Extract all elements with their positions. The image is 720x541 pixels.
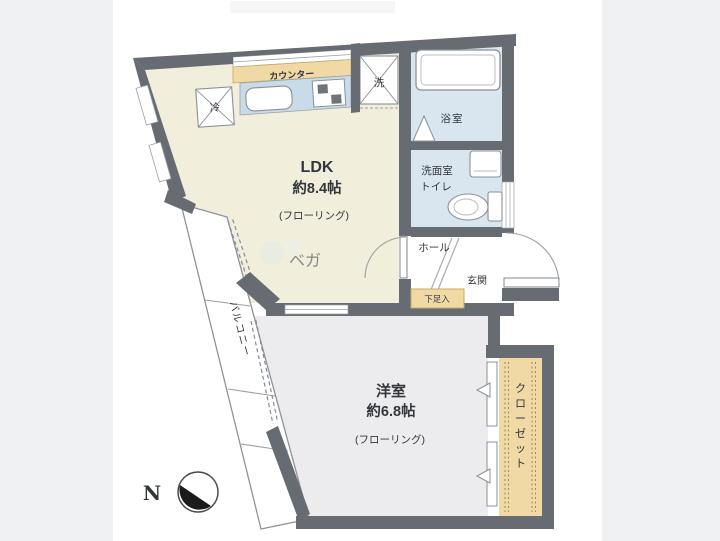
wall-bath-washroom (411, 141, 514, 150)
bedroom-title: 洋室 (376, 382, 406, 400)
watermark-text: ベガ (289, 252, 321, 270)
hall-door-leaf (400, 236, 407, 278)
fridge-label: 冷 (209, 101, 221, 115)
wall-closet-right (542, 345, 554, 529)
floorplan-svg: ベガ バルコニー カウンター 冷 (0, 0, 720, 541)
north-label: N (143, 481, 161, 505)
bedroom-size: 約6.8帖 (366, 402, 416, 420)
wall-entrance-stub (502, 288, 559, 301)
closet-label-char: ゼ (515, 427, 526, 440)
closet-label-char: ク (515, 382, 526, 395)
wall-closet-connector (488, 316, 500, 347)
kitchen-sink (245, 86, 292, 112)
watermark-circle (260, 241, 284, 265)
shoe-box-label: 下足入 (424, 294, 450, 304)
closet-label-char: ト (515, 458, 526, 470)
stove-burner (331, 94, 342, 104)
closet-label-char: ー (515, 413, 526, 425)
closet-label-char: ロ (515, 398, 526, 410)
hall-label: ホール (418, 242, 450, 254)
washer: 洗 (360, 56, 398, 108)
stove (312, 79, 346, 107)
bath-label: 浴室 (441, 112, 464, 125)
wall-bottom (296, 516, 554, 529)
closet-label-char: ッ (515, 443, 526, 455)
ldk-size: 約8.4帖 (292, 179, 342, 197)
right-wall-window (502, 182, 514, 228)
washer-label: 洗 (374, 77, 385, 89)
watermark-circle-2 (285, 238, 301, 254)
bathtub (416, 50, 500, 90)
wall-kitchen-washer-stub (351, 43, 360, 113)
cropped-top-watermark (230, 1, 395, 13)
washroom-label-1: 洗面室 (421, 164, 453, 177)
fridge: 冷 (196, 87, 235, 127)
toilet-tank (488, 192, 502, 221)
ldk-title: LDK (301, 159, 334, 176)
bedroom-floor-type: (フローリング) (355, 433, 425, 446)
entrance-door-leaf (504, 278, 559, 287)
wall-washroom-hall (411, 227, 514, 237)
entrance-label: 玄関 (467, 274, 487, 287)
ldk-floor-type: (フローリング) (279, 209, 349, 222)
sink (470, 151, 501, 177)
washroom-label-2: トイレ (420, 181, 452, 193)
stove-burner (317, 84, 328, 94)
floorplan-page: ベガ バルコニー カウンター 冷 (0, 0, 720, 541)
